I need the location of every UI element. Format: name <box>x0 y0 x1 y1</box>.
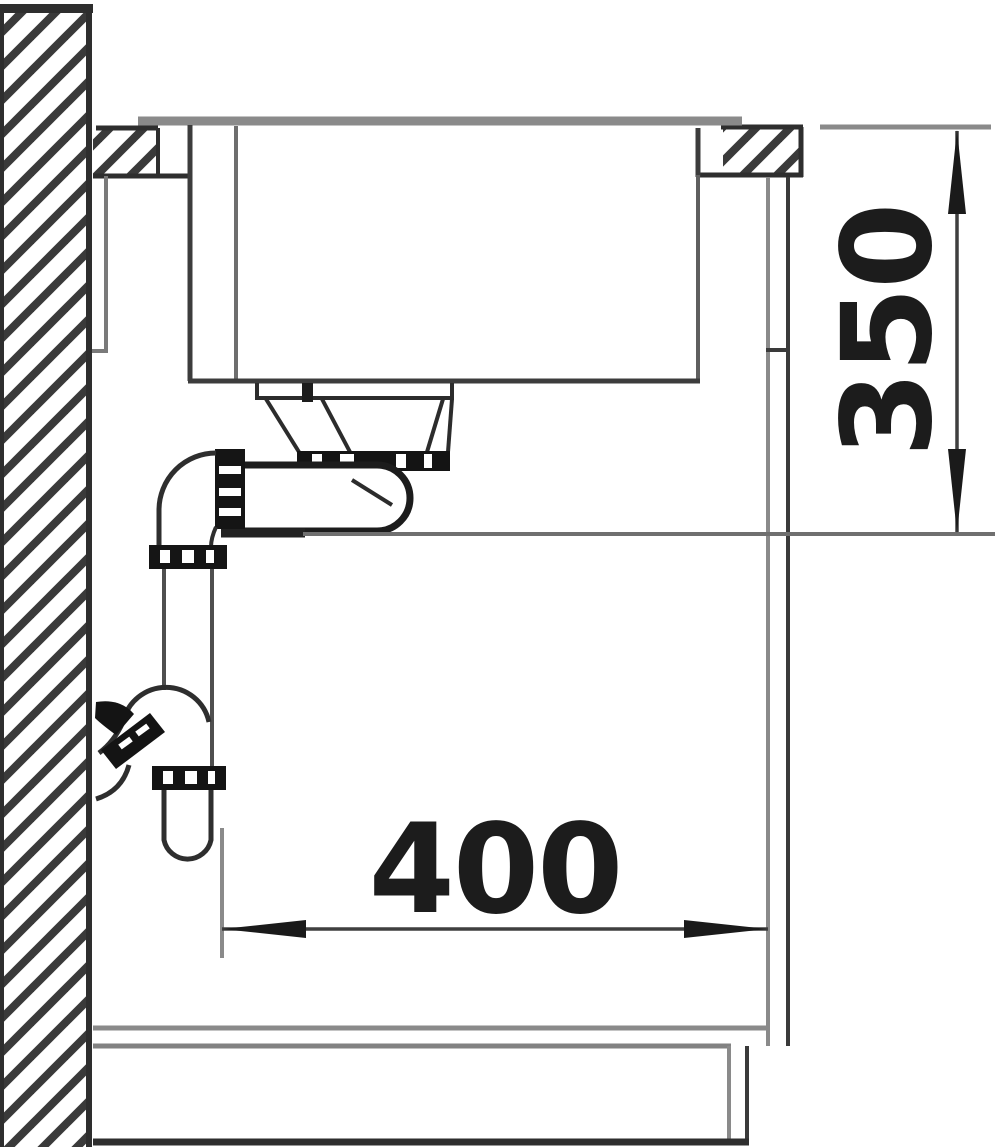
strainer-cup-slope-inner-left <box>322 399 350 452</box>
trap-lower-wall-arc <box>96 765 129 799</box>
countertop-right-section <box>723 129 801 177</box>
band-thread-gap <box>208 771 215 784</box>
strainer-cup-slope-inner-right <box>427 399 443 452</box>
elbow-outer-contour <box>159 453 216 547</box>
dim350-label: 350 <box>816 205 960 458</box>
dimension-400: 400 <box>222 798 768 958</box>
collar-thread-gap <box>424 454 432 468</box>
dimension-350: 350 <box>303 127 995 534</box>
wall-outlet-trap <box>95 687 226 859</box>
coupling-thread-gap <box>206 550 214 563</box>
collar-thread-gap <box>396 454 406 468</box>
elbow-inner-contour <box>211 527 216 547</box>
wall-top-edge <box>0 4 93 13</box>
band-thread-gap <box>163 771 173 784</box>
cabinet <box>93 177 790 1142</box>
trap-u-tube <box>164 790 211 859</box>
strainer-cup-slope-outer-right <box>448 399 452 452</box>
band-thread-gap <box>185 771 197 784</box>
nut-thread-gap <box>219 466 241 474</box>
down-pipe <box>164 569 212 766</box>
drawing-canvas: 350 400 <box>0 0 1000 1147</box>
wall-left-edge <box>0 4 4 1147</box>
dim400-label: 400 <box>369 798 622 942</box>
wall-section <box>0 4 93 1147</box>
sink-section-drawing: 350 400 <box>0 0 1000 1147</box>
dim400-arrow-left <box>222 920 306 938</box>
wall-right-edge <box>86 6 92 1147</box>
strainer-cup-slope-outer-left <box>266 399 299 452</box>
trap-capsule-body <box>244 465 410 531</box>
coupling-thread-gap <box>182 550 194 563</box>
wall-hatch <box>2 6 91 1147</box>
trap-dome-arc <box>123 687 209 722</box>
nut-thread-gap <box>219 508 241 516</box>
dim400-arrow-right <box>684 920 768 938</box>
coupling-thread-gap <box>160 550 170 563</box>
nut-thread-gap <box>219 488 241 496</box>
strainer-plug-link <box>302 383 313 402</box>
space-saver-trap <box>149 449 410 569</box>
sink-bowl <box>188 125 700 381</box>
countertop-left-section <box>93 129 158 175</box>
dim350-arrow-down <box>948 449 966 533</box>
drain-strainer <box>255 383 454 471</box>
dim350-arrow-up <box>948 130 966 214</box>
